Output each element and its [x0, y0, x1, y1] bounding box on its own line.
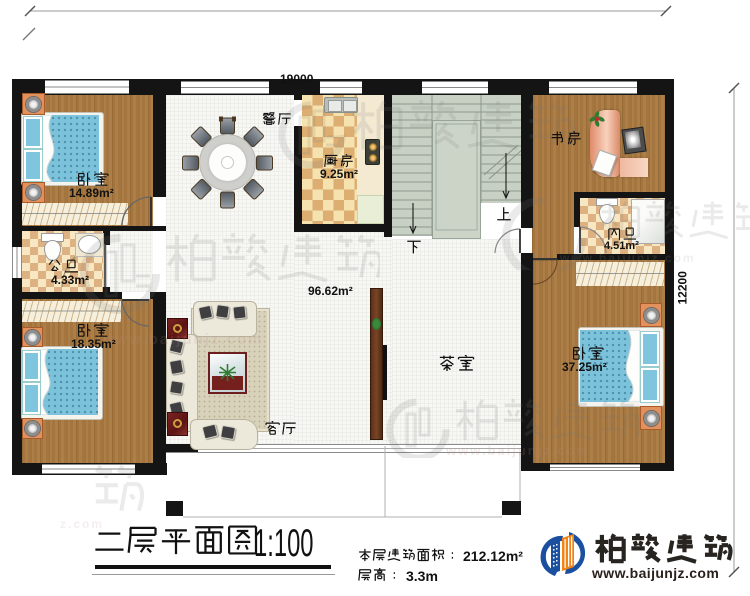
svg-text:www.baijunjz.com: www.baijunjz.com — [101, 331, 263, 348]
svg-text:www.baijunjz.com: www.baijunjz.com — [559, 251, 696, 265]
svg-text:www.baijunjz.com: www.baijunjz.com — [445, 443, 590, 458]
